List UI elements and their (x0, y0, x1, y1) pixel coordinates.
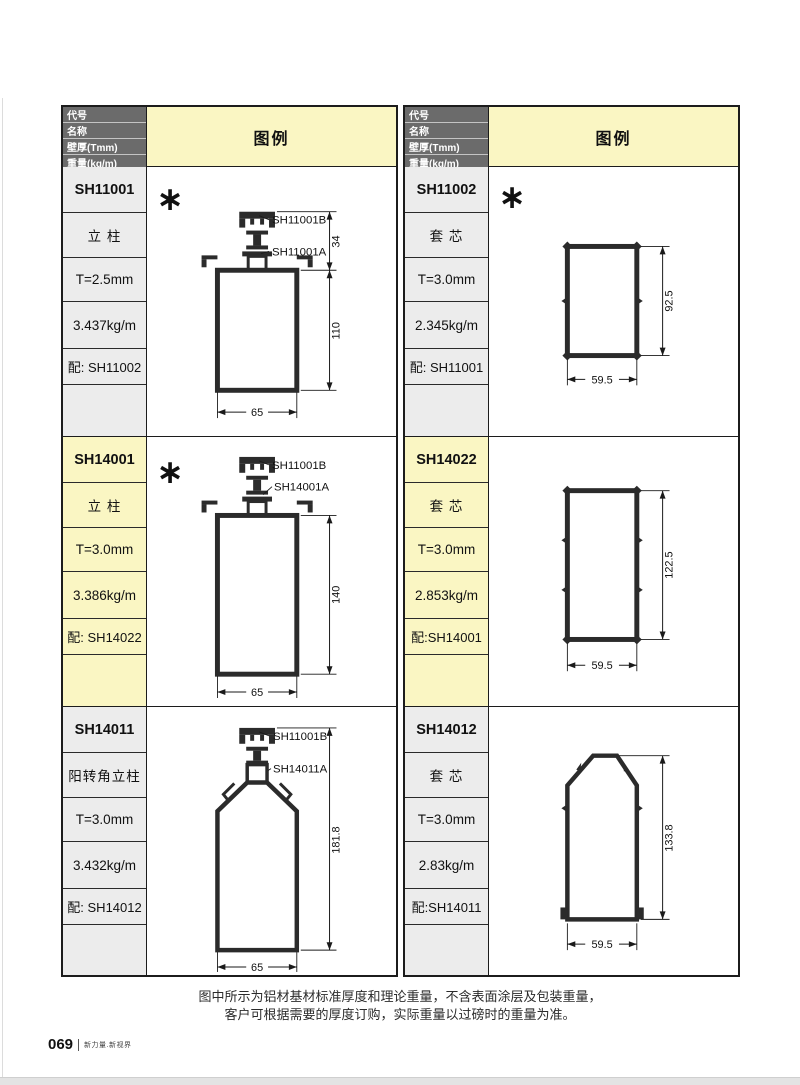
profile-block-sh14011: SH14011 阳转角立柱 T=3.0mm 3.432kg/m 配: SH140… (63, 707, 396, 975)
profile-name: 立 柱 (63, 213, 146, 258)
cross-section-drawing: ∗ 1 (147, 437, 397, 707)
asterisk-mark: ∗ (157, 454, 184, 490)
part-label-b: SH11001B (272, 460, 326, 472)
bottom-scan-band (0, 1077, 800, 1085)
page-scan-edge (2, 98, 3, 1078)
dim-width: 65 (251, 687, 263, 699)
header-legend: 图例 (489, 107, 738, 166)
header-row-code: 代号 (63, 107, 146, 123)
info-column: SH14012 套 芯 T=3.0mm 2.83kg/m 配:SH14011 (405, 707, 489, 975)
cross-section-drawing: ∗ 92.5 (489, 167, 739, 437)
dim-height: 181.8 (330, 826, 342, 853)
asterisk-mark: ∗ (157, 181, 184, 217)
profile-figure-sh14012: 133.8 59.5 (489, 707, 738, 975)
profile-mate: 配: SH14012 (63, 889, 146, 925)
profile-mate: 配:SH14001 (405, 619, 488, 655)
profile-weight: 2.83kg/m (405, 842, 488, 889)
page-number: 069 (48, 1036, 73, 1053)
empty-cell (405, 925, 488, 975)
profile-code: SH14001 (63, 437, 146, 483)
dim-height: 122.5 (664, 551, 676, 578)
header-legend: 图例 (147, 107, 396, 166)
header-row-name: 名称 (63, 123, 146, 139)
profile-thickness: T=3.0mm (405, 258, 488, 302)
info-column: SH14011 阳转角立柱 T=3.0mm 3.432kg/m 配: SH140… (63, 707, 147, 975)
asterisk-mark: ∗ (499, 179, 526, 215)
profile-thickness: T=3.0mm (63, 528, 146, 572)
profile-figure-sh11001: ∗ (147, 167, 396, 436)
profile-code: SH14022 (405, 437, 488, 483)
profile-mate: 配: SH14022 (63, 619, 146, 655)
dim-height: 140 (330, 586, 342, 604)
dim-width: 59.5 (591, 660, 612, 672)
dim-width: 65 (251, 962, 263, 974)
part-label-a: SH14011A (273, 764, 328, 776)
profile-thickness: T=3.0mm (405, 528, 488, 572)
profile-figure-sh14022: 122.5 59.5 (489, 437, 738, 706)
empty-cell (63, 655, 146, 706)
header-label-column: 代号 名称 壁厚(Tmm) 重量(kg/m) 配套 (63, 107, 147, 166)
dim-height: 133.8 (664, 824, 676, 851)
profile-mate: 配: SH11002 (63, 349, 146, 385)
info-column: SH14001 立 柱 T=3.0mm 3.386kg/m 配: SH14022 (63, 437, 147, 706)
profile-name: 套 芯 (405, 483, 488, 528)
profile-block-sh14022: SH14022 套 芯 T=3.0mm 2.853kg/m 配:SH14001 (405, 437, 738, 707)
profile-thickness: T=2.5mm (63, 258, 146, 302)
profile-weight: 3.432kg/m (63, 842, 146, 889)
footer-note-line1: 图中所示为铝材基材标准厚度和理论重量，不含表面涂层及包装重量， (0, 988, 800, 1006)
footer-note-line2: 客户可根据需要的厚度订购，实际重量以过磅时的重量为准。 (0, 1006, 800, 1024)
profile-name: 立 柱 (63, 483, 146, 528)
profile-mate: 配: SH11001 (405, 349, 488, 385)
dim-height: 92.5 (664, 290, 676, 311)
dim-width: 59.5 (591, 939, 612, 951)
profile-figure-sh11002: ∗ 92.5 (489, 167, 738, 436)
part-label-a: SH14001A (274, 482, 329, 494)
profile-figure-sh14001: ∗ 1 (147, 437, 396, 706)
profile-weight: 2.853kg/m (405, 572, 488, 619)
header-row-code: 代号 (405, 107, 488, 123)
profile-table-left: 代号 名称 壁厚(Tmm) 重量(kg/m) 配套 图例 SH11001 立 柱… (61, 105, 398, 977)
profile-thickness: T=3.0mm (405, 798, 488, 842)
empty-cell (63, 925, 146, 975)
profile-mate: 配:SH14011 (405, 889, 488, 925)
profile-weight: 3.437kg/m (63, 302, 146, 349)
part-label-a: SH11001A (272, 246, 327, 258)
header-row-thickness: 壁厚(Tmm) (405, 139, 488, 155)
dim-width: 59.5 (591, 374, 612, 386)
profile-name: 套 芯 (405, 213, 488, 258)
info-column: SH11002 套 芯 T=3.0mm 2.345kg/m 配: SH11001 (405, 167, 489, 436)
empty-cell (405, 655, 488, 706)
header-label-column: 代号 名称 壁厚(Tmm) 重量(kg/m) 配套 (405, 107, 489, 166)
profile-block-sh14012: SH14012 套 芯 T=3.0mm 2.83kg/m 配:SH14011 (405, 707, 738, 975)
dim-top: 34 (330, 235, 342, 247)
cross-section-drawing: 181.8 65 SH11001B SH14011A (147, 707, 397, 975)
cross-section-drawing: 133.8 59.5 (489, 707, 739, 975)
cross-section-drawing: 122.5 59.5 (489, 437, 739, 707)
table-header: 代号 名称 壁厚(Tmm) 重量(kg/m) 配套 图例 (63, 107, 396, 167)
profile-name: 套 芯 (405, 753, 488, 798)
profile-table-right: 代号 名称 壁厚(Tmm) 重量(kg/m) 配套 图例 SH11002 套 芯… (403, 105, 740, 977)
page-footer: 069 新力量.新视界 (48, 1036, 131, 1053)
profile-name: 阳转角立柱 (63, 753, 146, 798)
profile-block-sh11002: SH11002 套 芯 T=3.0mm 2.345kg/m 配: SH11001… (405, 167, 738, 437)
info-column: SH11001 立 柱 T=2.5mm 3.437kg/m 配: SH11002 (63, 167, 147, 436)
footer-brand-text: 新力量.新视界 (84, 1040, 131, 1050)
profile-block-sh11001: SH11001 立 柱 T=2.5mm 3.437kg/m 配: SH11002… (63, 167, 396, 437)
profile-code: SH11002 (405, 167, 488, 213)
part-label-b: SH11001B (273, 731, 327, 743)
profile-thickness: T=3.0mm (63, 798, 146, 842)
info-column: SH14022 套 芯 T=3.0mm 2.853kg/m 配:SH14001 (405, 437, 489, 706)
profile-code: SH14012 (405, 707, 488, 753)
table-header: 代号 名称 壁厚(Tmm) 重量(kg/m) 配套 图例 (405, 107, 738, 167)
profile-weight: 3.386kg/m (63, 572, 146, 619)
profile-code: SH11001 (63, 167, 146, 213)
dim-height: 110 (330, 322, 342, 339)
cross-section-drawing: ∗ (147, 167, 397, 437)
profile-code: SH14011 (63, 707, 146, 753)
part-label-b: SH11001B (272, 215, 326, 227)
profile-figure-sh14011: 181.8 65 SH11001B SH14011A (147, 707, 396, 975)
dim-width: 65 (251, 407, 263, 419)
profile-block-sh14001: SH14001 立 柱 T=3.0mm 3.386kg/m 配: SH14022… (63, 437, 396, 707)
header-row-name: 名称 (405, 123, 488, 139)
profile-weight: 2.345kg/m (405, 302, 488, 349)
empty-cell (405, 385, 488, 436)
footer-note: 图中所示为铝材基材标准厚度和理论重量，不含表面涂层及包装重量， 客户可根据需要的… (0, 988, 800, 1024)
header-row-thickness: 壁厚(Tmm) (63, 139, 146, 155)
footer-divider (78, 1039, 79, 1051)
empty-cell (63, 385, 146, 436)
